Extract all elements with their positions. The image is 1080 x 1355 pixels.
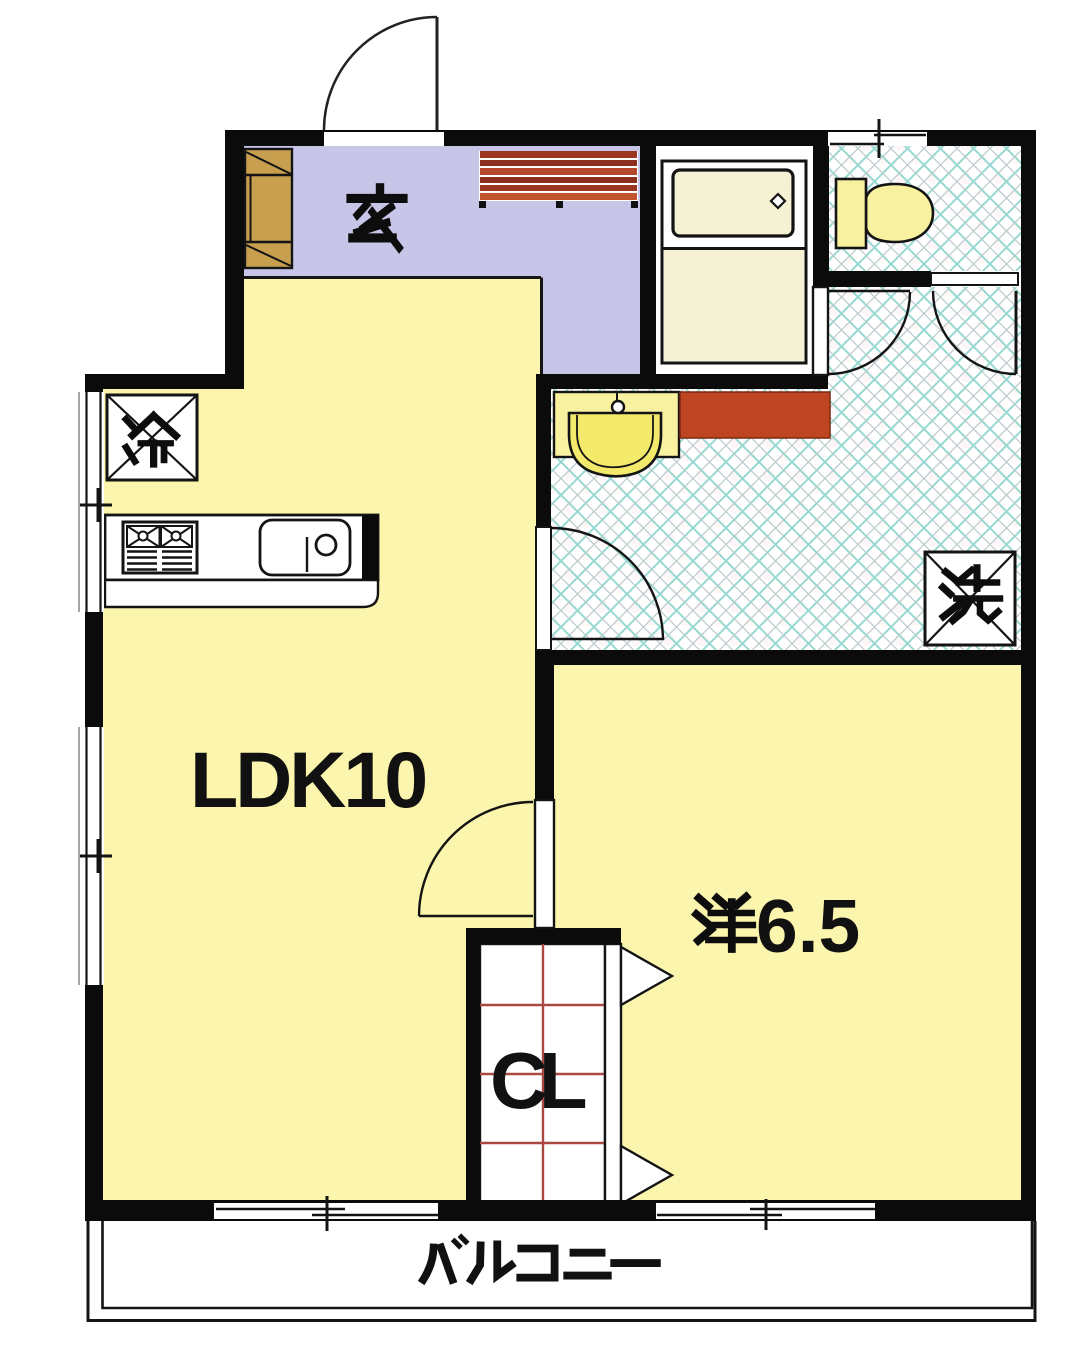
svg-text:6.5: 6.5	[756, 884, 860, 968]
svg-text:LDK10: LDK10	[190, 735, 425, 824]
svg-text:CL: CL	[490, 1036, 586, 1125]
